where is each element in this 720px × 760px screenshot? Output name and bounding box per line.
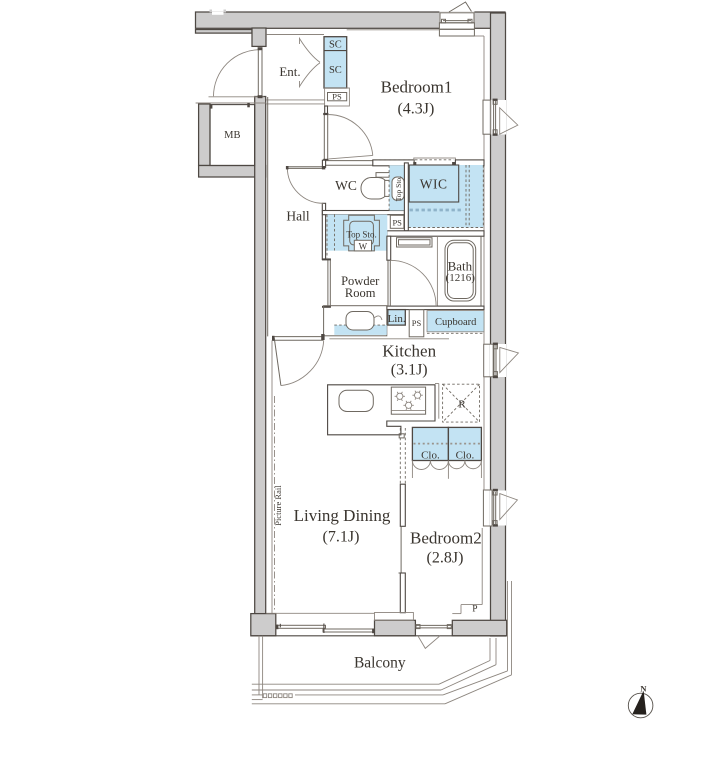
svg-text:Clo.: Clo. [456,449,475,461]
svg-text:Kitchen: Kitchen [382,341,436,360]
svg-text:(3.1J): (3.1J) [391,362,428,379]
svg-text:Bedroom2: Bedroom2 [410,529,482,548]
svg-text:WIC: WIC [420,177,448,192]
svg-text:Ent.: Ent. [279,64,300,79]
svg-text:Hall: Hall [286,208,309,223]
svg-text:Picture Rail: Picture Rail [273,485,283,526]
svg-text:SC: SC [329,65,342,76]
svg-text:WC: WC [335,178,357,193]
svg-text:(4.3J): (4.3J) [397,101,434,118]
svg-text:Living Dining: Living Dining [294,506,391,525]
svg-text:Top Sto.: Top Sto. [394,176,403,201]
svg-text:MB: MB [224,130,240,141]
svg-text:Room: Room [345,286,376,300]
svg-text:PS: PS [412,318,422,328]
svg-text:PS: PS [332,92,342,102]
svg-text:(1216): (1216) [446,272,476,284]
svg-text:SC: SC [329,40,342,51]
svg-text:Lin.: Lin. [388,313,406,325]
svg-text:Cupboard: Cupboard [435,317,477,328]
svg-text:R: R [458,399,466,411]
svg-text:(7.1J): (7.1J) [323,529,360,546]
svg-text:(2.8J): (2.8J) [427,550,464,567]
svg-text:PS: PS [392,218,402,228]
svg-text:Bedroom1: Bedroom1 [381,77,453,96]
svg-text:W: W [359,242,368,252]
svg-text:P: P [472,605,477,615]
svg-text:N: N [640,683,647,693]
svg-text:Balcony: Balcony [354,654,406,671]
svg-text:Top Sto.: Top Sto. [346,229,376,239]
svg-text:Clo.: Clo. [421,449,440,461]
